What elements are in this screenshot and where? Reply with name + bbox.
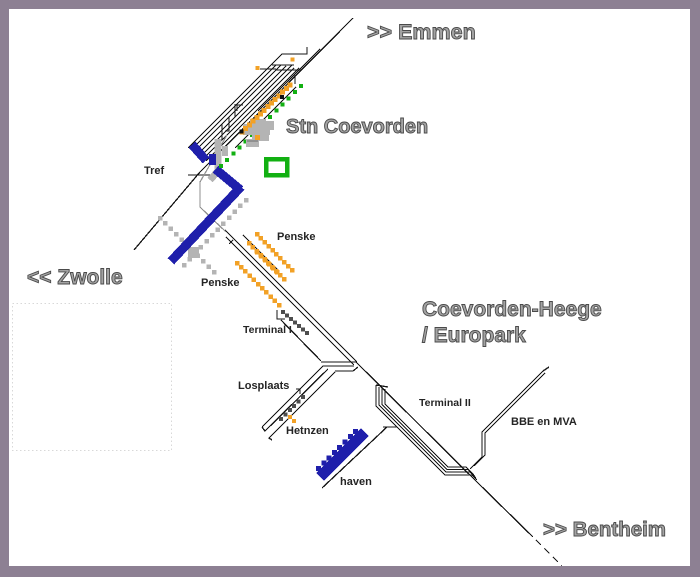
svg-text:>> Bentheim: >> Bentheim	[543, 518, 666, 541]
svg-text:<< Zwolle: << Zwolle	[27, 266, 123, 289]
svg-text:Tref: Tref	[144, 165, 165, 177]
svg-text:Penske: Penske	[201, 277, 240, 289]
svg-text:Penske: Penske	[277, 231, 316, 243]
svg-text:Coevorden-Heege: Coevorden-Heege	[422, 298, 602, 321]
svg-text:Hetnzen: Hetnzen	[286, 425, 329, 437]
svg-text:BBE en MVA: BBE en MVA	[511, 416, 577, 428]
svg-text:Terminal I: Terminal I	[243, 324, 292, 336]
svg-text:>> Emmen: >> Emmen	[367, 20, 476, 44]
svg-text:/ Europark: / Europark	[422, 324, 526, 347]
svg-text:Losplaats: Losplaats	[238, 380, 289, 392]
svg-text:haven: haven	[340, 476, 372, 488]
svg-text:Terminal II: Terminal II	[419, 397, 471, 409]
svg-text:Stn Coevorden: Stn Coevorden	[286, 116, 428, 138]
